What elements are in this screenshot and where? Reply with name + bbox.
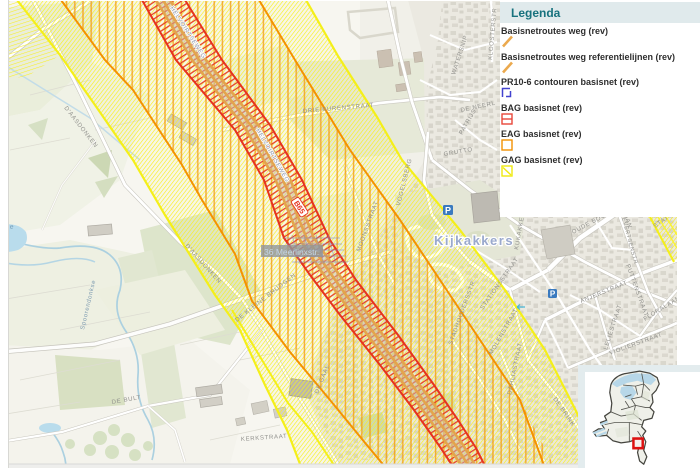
svg-text:Basisnetroutes weg (rev): Basisnetroutes weg (rev)	[501, 26, 608, 36]
svg-text:GAG basisnet (rev): GAG basisnet (rev)	[501, 155, 583, 165]
svg-text:36 Meerlinxstr.: 36 Meerlinxstr.	[264, 247, 319, 257]
svg-text:Basisnetroutes weg referentiel: Basisnetroutes weg referentielijnen (rev…	[501, 52, 675, 62]
svg-text:P: P	[445, 206, 451, 216]
svg-text:Kijkakkers: Kijkakkers	[434, 233, 514, 248]
svg-text:EAG basisnet (rev): EAG basisnet (rev)	[501, 129, 582, 139]
svg-text:BAG basisnet (rev): BAG basisnet (rev)	[501, 103, 582, 113]
svg-text:Legenda: Legenda	[511, 6, 561, 20]
svg-text:PR10-6 contouren basisnet (rev: PR10-6 contouren basisnet (rev)	[501, 77, 639, 87]
svg-text:P: P	[550, 290, 556, 299]
